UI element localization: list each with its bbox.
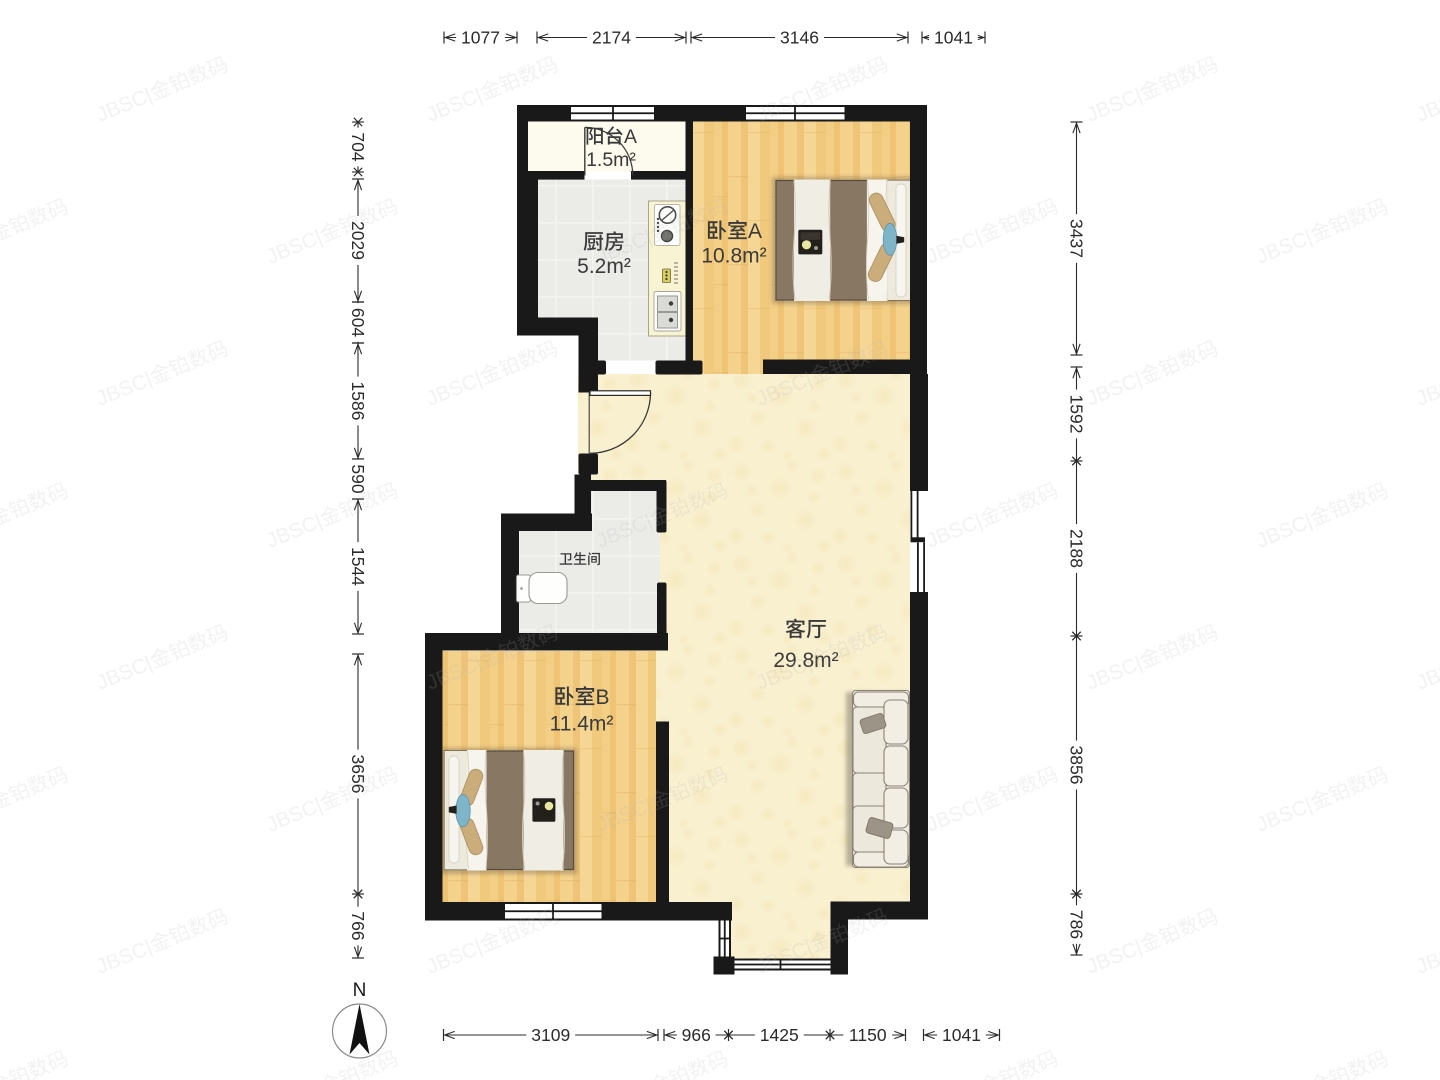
svg-text:1425: 1425 xyxy=(760,1025,799,1045)
svg-text:3856: 3856 xyxy=(1066,746,1086,785)
svg-text:3146: 3146 xyxy=(780,28,819,48)
svg-text:1544: 1544 xyxy=(348,547,368,586)
svg-text:A: A xyxy=(748,220,762,243)
svg-text:1077: 1077 xyxy=(461,28,500,48)
svg-text:966: 966 xyxy=(682,1025,711,1045)
svg-text:604: 604 xyxy=(348,308,368,337)
svg-text:11.4m²: 11.4m² xyxy=(550,713,614,736)
svg-text:B: B xyxy=(595,686,609,709)
svg-text:1.5m²: 1.5m² xyxy=(586,149,636,171)
svg-text:1150: 1150 xyxy=(849,1025,887,1045)
svg-text:1041: 1041 xyxy=(942,1025,981,1045)
svg-text:786: 786 xyxy=(1066,910,1086,939)
svg-text:704: 704 xyxy=(348,132,368,161)
svg-text:590: 590 xyxy=(348,464,368,493)
svg-text:1041: 1041 xyxy=(934,28,973,48)
svg-text:N: N xyxy=(353,980,367,1001)
svg-text:1586: 1586 xyxy=(348,382,368,421)
svg-text:3109: 3109 xyxy=(531,1025,570,1045)
svg-text:10.8m²: 10.8m² xyxy=(701,245,766,268)
svg-text:1592: 1592 xyxy=(1066,395,1086,434)
svg-text:A: A xyxy=(624,126,637,148)
svg-text:3437: 3437 xyxy=(1066,219,1086,258)
svg-text:766: 766 xyxy=(348,911,368,940)
svg-text:2174: 2174 xyxy=(592,28,631,48)
svg-text:2188: 2188 xyxy=(1066,529,1086,568)
